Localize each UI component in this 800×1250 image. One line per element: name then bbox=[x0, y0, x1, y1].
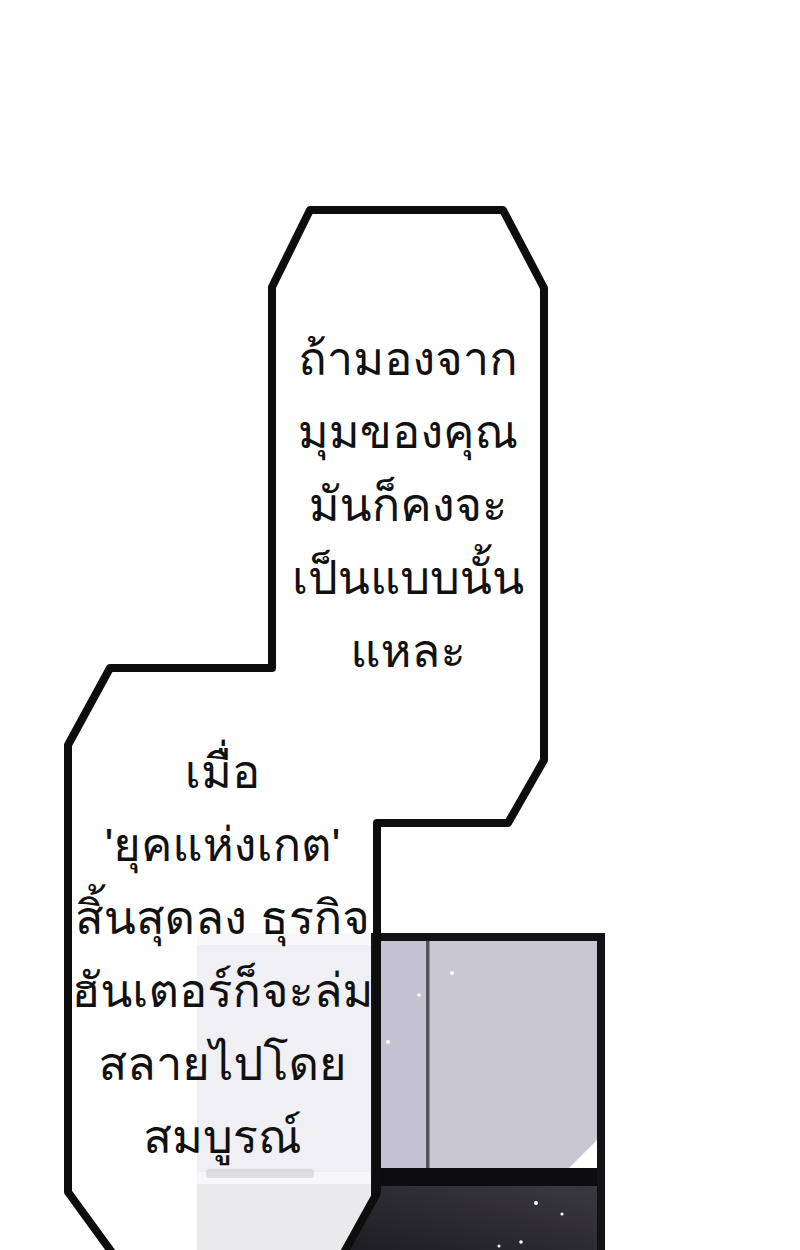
door-seam-line bbox=[426, 941, 430, 1168]
speckle-dot bbox=[560, 1212, 563, 1215]
speckle-dot bbox=[417, 993, 421, 997]
webtoon-page: ถ้ามองจาก มุมของคุณ มันก็คงจะ เป็นแบบนั้… bbox=[0, 0, 800, 1250]
washed-panel-wall bbox=[197, 945, 373, 1172]
door-left-panel bbox=[379, 941, 426, 1168]
floor-shadow-band bbox=[379, 1168, 597, 1186]
speckle-dot bbox=[450, 971, 454, 975]
washed-panel-top-band bbox=[197, 933, 373, 945]
speckle-dot bbox=[386, 1040, 390, 1044]
speckle-dot bbox=[534, 1201, 538, 1205]
speckle-dot bbox=[519, 1240, 523, 1244]
washed-smudge bbox=[206, 1169, 314, 1178]
speckle-dot bbox=[498, 1245, 501, 1248]
floor bbox=[346, 1186, 597, 1250]
comic-panel-scene bbox=[0, 0, 800, 1250]
